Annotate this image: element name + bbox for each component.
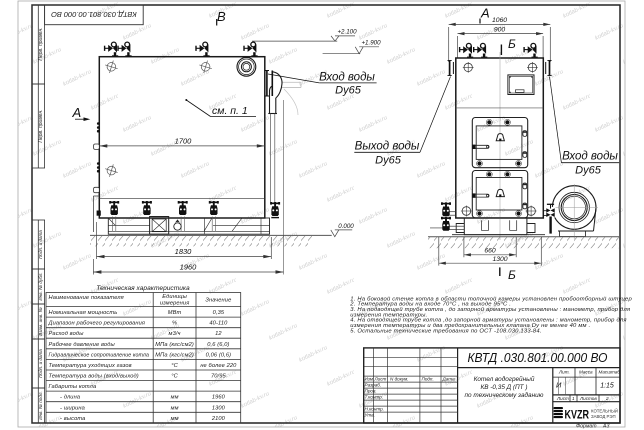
svg-text:660: 660 xyxy=(484,247,496,254)
svg-text:по техническому заданию: по техническому заданию xyxy=(465,391,544,399)
svg-text:- длина: - длина xyxy=(60,395,80,401)
svg-text:Гидравлическое сопротивление к: Гидравлическое сопротивление котла xyxy=(49,352,150,358)
svg-text:KVZR: KVZR xyxy=(565,410,590,422)
svg-text:Температура уходящих газов: Температура уходящих газов xyxy=(49,363,132,369)
svg-text:Разраб.: Разраб. xyxy=(365,382,382,387)
svg-text:1960: 1960 xyxy=(180,263,198,272)
svg-text:Перв. примен.: Перв. примен. xyxy=(38,27,44,60)
svg-text:Инв. № подл.: Инв. № подл. xyxy=(38,391,43,420)
svg-text:70/95: 70/95 xyxy=(211,374,227,380)
svg-text:2100: 2100 xyxy=(211,416,226,422)
svg-text:+1.900: +1.900 xyxy=(361,40,381,47)
svg-text:Выход воды: Выход воды xyxy=(355,141,420,153)
svg-text:Масса: Масса xyxy=(579,370,593,375)
svg-text:1:15: 1:15 xyxy=(600,383,614,390)
svg-text:Взам. инв. №: Взам. инв. № xyxy=(38,307,43,335)
svg-text:мм: мм xyxy=(171,416,179,422)
svg-text:0,35: 0,35 xyxy=(213,310,225,316)
svg-text:Подп. и дата: Подп. и дата xyxy=(38,349,43,378)
svg-text:1960: 1960 xyxy=(212,395,226,401)
svg-text:Значение: Значение xyxy=(205,298,231,304)
svg-text:1060: 1060 xyxy=(492,17,507,24)
svg-text:Единицы: Единицы xyxy=(162,294,187,300)
svg-text:Подп. и дата: Подп. и дата xyxy=(38,230,43,259)
svg-text:0,6 (6,0): 0,6 (6,0) xyxy=(207,342,229,348)
svg-text:Лист: Лист xyxy=(556,396,569,401)
svg-text:Расход воды: Расход воды xyxy=(49,331,85,337)
svg-text:Котел водогрейный: Котел водогрейный xyxy=(474,375,535,383)
svg-text:Инв. № дубл.: Инв. № дубл. xyxy=(38,272,43,300)
svg-text:Листов: Листов xyxy=(579,396,597,401)
svg-text:Б: Б xyxy=(508,37,516,51)
svg-text:Наименование показателя: Наименование показателя xyxy=(49,295,124,301)
svg-text:Dy65: Dy65 xyxy=(375,155,402,167)
svg-text:МПа (кгс/см2): МПа (кгс/см2) xyxy=(155,342,194,348)
svg-text:%: % xyxy=(172,321,177,327)
svg-text:Dy65: Dy65 xyxy=(335,85,362,97)
svg-text:Техническая характеристика: Техническая характеристика xyxy=(96,285,190,292)
svg-text:Пров.: Пров. xyxy=(365,388,377,393)
svg-text:°С: °С xyxy=(171,363,178,369)
svg-text:1300: 1300 xyxy=(212,405,226,411)
svg-text:1700: 1700 xyxy=(175,137,193,146)
svg-text:Лит.: Лит. xyxy=(558,370,570,375)
svg-text:Dy65: Dy65 xyxy=(575,164,602,176)
svg-text:А3: А3 xyxy=(602,423,609,429)
svg-text:0,06 (0,6): 0,06 (0,6) xyxy=(206,352,232,358)
svg-text:Габариты котла: Габариты котла xyxy=(49,384,97,390)
svg-text:мм: мм xyxy=(171,405,179,411)
svg-text:МПа (кгс/см2): МПа (кгс/см2) xyxy=(155,352,194,358)
svg-text:КВТД.030.801.00.000 ВО: КВТД.030.801.00.000 ВО xyxy=(51,10,137,19)
svg-text:Вход воды: Вход воды xyxy=(562,151,618,163)
svg-text:Вход воды: Вход воды xyxy=(319,72,375,84)
svg-text:Лист: Лист xyxy=(374,376,387,381)
svg-text:900: 900 xyxy=(494,27,506,34)
svg-text:Температура воды (вход/выход): Температура воды (вход/выход) xyxy=(49,374,139,380)
svg-text:КОТЕЛЬНЫЙ: КОТЕЛЬНЫЙ xyxy=(591,409,618,414)
svg-text:1300: 1300 xyxy=(492,256,507,263)
svg-text:- ширина: - ширина xyxy=(60,405,85,411)
svg-text:мм: мм xyxy=(171,395,179,401)
svg-text:0.000: 0.000 xyxy=(338,223,354,230)
svg-text:А: А xyxy=(72,105,82,120)
svg-text:40-110: 40-110 xyxy=(209,321,228,327)
svg-text:12: 12 xyxy=(215,331,222,337)
svg-text:Н.контр.: Н.контр. xyxy=(365,406,384,411)
svg-text:МВт: МВт xyxy=(168,310,182,316)
svg-text:ЗАВОД РЭП: ЗАВОД РЭП xyxy=(591,414,616,419)
svg-text:см. п. 1: см. п. 1 xyxy=(212,105,248,117)
svg-text:А: А xyxy=(480,6,490,21)
svg-text:N докум.: N докум. xyxy=(390,376,409,381)
svg-text:2: 2 xyxy=(605,396,609,401)
svg-text:1: 1 xyxy=(572,396,575,401)
svg-text:измерения: измерения xyxy=(160,301,190,307)
svg-text:КВТД .030.801.00.000 ВО: КВТД .030.801.00.000 ВО xyxy=(468,351,608,365)
svg-text:Формат: Формат xyxy=(576,423,597,429)
svg-text:Рабочее давление воды: Рабочее давление воды xyxy=(49,342,116,348)
svg-text:Т.контр.: Т.контр. xyxy=(365,394,384,399)
svg-text:Утв.: Утв. xyxy=(365,412,375,417)
svg-text:КВ -0,35 Д (ПТ ): КВ -0,35 Д (ПТ ) xyxy=(481,384,528,391)
svg-text:И: И xyxy=(556,381,562,390)
svg-text:м3/ч: м3/ч xyxy=(169,331,181,337)
svg-text:Изм: Изм xyxy=(365,376,374,381)
svg-text:Дата: Дата xyxy=(442,376,456,381)
svg-text:+2.100: +2.100 xyxy=(337,29,357,36)
svg-text:Диапазон рабочего регулировани: Диапазон рабочего регулирования xyxy=(48,321,146,327)
svg-text:В: В xyxy=(217,9,226,24)
svg-text:5. Остальные технические треб: 5. Остальные технические требования по О… xyxy=(350,328,541,334)
svg-text:1830: 1830 xyxy=(175,247,193,256)
svg-text:не более 220: не более 220 xyxy=(200,363,237,369)
svg-text:Номинальная мощность: Номинальная мощность xyxy=(49,310,118,316)
svg-text:Б: Б xyxy=(508,268,516,282)
svg-text:Перв. примен.: Перв. примен. xyxy=(38,109,44,142)
svg-text:- высота: - высота xyxy=(60,416,85,422)
svg-text:Подп.: Подп. xyxy=(422,376,434,381)
svg-text:Масштаб: Масштаб xyxy=(599,370,621,375)
svg-text:°С: °С xyxy=(171,374,178,380)
